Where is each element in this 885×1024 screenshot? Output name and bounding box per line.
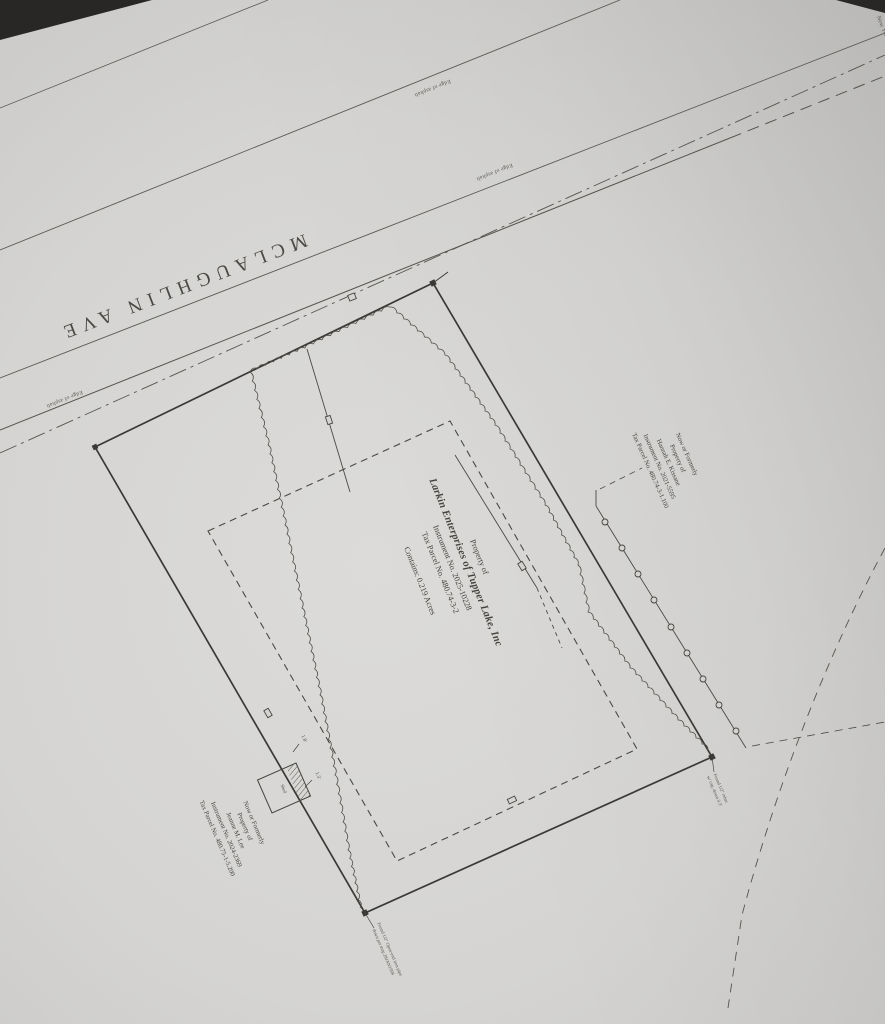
utility-line-east-dashed (537, 588, 562, 648)
utility-marker-east (518, 561, 526, 570)
row-marker-square (348, 293, 357, 301)
utility-marker-north (325, 415, 332, 424)
dashed-curve-southeast (728, 548, 885, 1008)
fence-dashed-south (752, 722, 885, 746)
parcel-boundary (95, 283, 712, 913)
line-marker-west (264, 708, 272, 717)
right-of-way-dashdot-line (0, 55, 885, 453)
road-edge-line-south (0, 138, 730, 430)
survey-map-photo: MCLAUGHLIN AVE Edge of asphalt Edge of a… (0, 0, 885, 1024)
corner-monument-nw (92, 444, 99, 451)
road-edge-line-north (0, 0, 620, 250)
road-edge-dashed-extension (730, 76, 885, 138)
treeline-east (250, 307, 708, 750)
road-edge-line-far (0, 0, 268, 108)
leader-dim-se (305, 780, 312, 787)
treeline-west (250, 372, 361, 908)
fence-post-circles (602, 519, 739, 734)
corner-monument-ne (429, 279, 436, 286)
line-marker-south (507, 796, 516, 804)
fence-dashed-north (600, 468, 642, 489)
leader-dim-ne (293, 744, 299, 752)
